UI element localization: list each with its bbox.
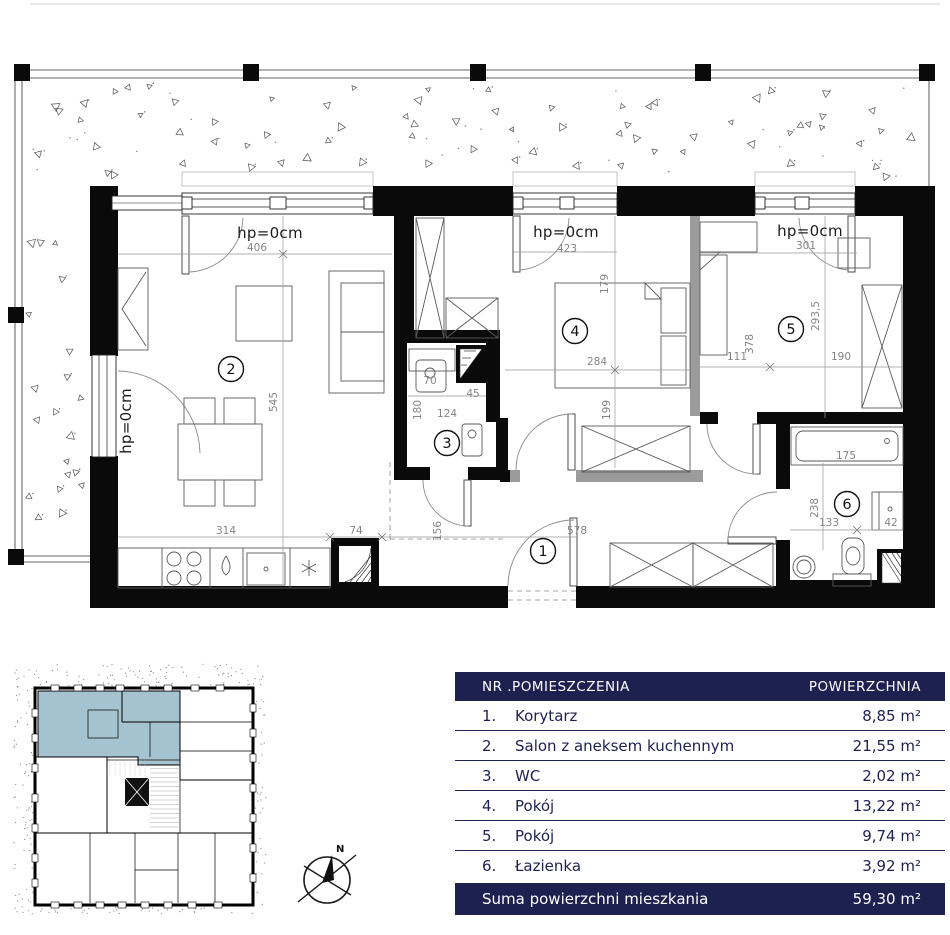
window-room5 [755,193,855,214]
wc-toilet [462,424,482,456]
plan-label-hp-0cm: hp=0cm [777,222,843,240]
room-name: Pokój [515,797,853,815]
legend-footer-total: 59,30 m² [853,890,921,908]
room-name: Korytarz [515,707,862,725]
kitchen-sink [247,553,285,585]
plan-label-301: 301 [796,240,816,252]
room-area: 21,55 m² [853,737,921,755]
legend-header-area: POWIERZCHNIA [809,679,921,695]
windows [92,193,855,457]
room-number: 1. [482,707,515,725]
legend-row-3: 3.WC2,02 m² [455,761,945,791]
plan-label-175: 175 [836,450,856,462]
plan-label-545: 545 [268,392,280,412]
wardrobe-salon [118,268,148,350]
sofa [329,271,384,393]
door-room5 [707,424,760,474]
legend-header-rooms: NR .POMIESZCZENIA [482,679,630,695]
plan-label-293-5: 293,5 [810,301,822,331]
plan-label-284: 284 [587,356,607,368]
plan-label-111: 111 [727,351,747,363]
legend-header: NR .POMIESZCZENIA POWIERZCHNIA [455,672,945,701]
page: hp=0cmhp=0cmhp=0cmhp=0cm4065454231792841… [0,0,950,935]
room-name: Salon z aneksem kuchennym [515,737,853,755]
plan-label-406: 406 [247,242,267,254]
wardrobe-room4-left [416,218,498,338]
plan-label-238: 238 [809,498,821,518]
plan-label-42: 42 [884,517,897,529]
room-marker-number-5: 5 [786,322,795,338]
room-area: 3,92 m² [862,857,921,875]
kitchen-counter [118,548,330,588]
plan-label-70: 70 [423,375,436,387]
fence-posts [8,64,935,565]
plan-label-179: 179 [599,274,611,294]
minimap [10,658,270,920]
room-number: 5. [482,827,515,845]
dimension-ticks [279,250,861,541]
room-number: 6. [482,857,515,875]
plan-label-124: 124 [437,408,457,420]
window-salon [182,193,373,214]
room-marker-number-3: 3 [442,436,451,452]
legend-row-5: 5.Pokój9,74 m² [455,821,945,851]
room-area: 2,02 m² [862,767,921,785]
plan-label-133: 133 [819,517,839,529]
dishwasher-icon [302,560,316,576]
north-label: N [336,844,344,855]
legend-row-6: 6.Łazienka3,92 m² [455,851,945,880]
legend-table: NR .POMIESZCZENIA POWIERZCHNIA 1.Korytar… [455,672,945,915]
floor-plan: hp=0cmhp=0cmhp=0cmhp=0cm4065454231792841… [0,0,950,660]
room-name: WC [515,767,862,785]
door-room4 [516,414,575,470]
room-number: 3. [482,767,515,785]
plan-label-hp-0cm: hp=0cm [237,224,303,242]
room-name: Pokój [515,827,862,845]
room-area: 8,85 m² [862,707,921,725]
legend-row-1: 1.Korytarz8,85 m² [455,701,945,731]
legend-row-2: 2.Salon z aneksem kuchennym21,55 m² [455,731,945,761]
door-bathroom [728,492,777,544]
plan-label-199: 199 [601,400,613,420]
wardrobe-room5 [862,285,902,408]
sink-drop-icon [222,556,230,575]
room-markers: 123456 [219,317,860,564]
plan-label-578: 578 [567,525,587,537]
plan-label-hp-0cm: hp=0cm [533,223,599,241]
wardrobe-room4-bottom [582,426,690,472]
room-name: Łazienka [515,857,862,875]
garden-fence [8,64,935,565]
legend-row-4: 4.Pokój13,22 m² [455,791,945,821]
door-salon-balcony [182,216,243,274]
balcony-door-left [92,355,116,457]
plan-label-314: 314 [216,525,236,537]
plan-label-hp-0cm: hp=0cm [117,388,135,454]
room-area: 13,22 m² [853,797,921,815]
plan-label-180: 180 [412,400,424,420]
bathroom-toilet [833,538,871,586]
plan-label-156: 156 [432,521,444,541]
terrace-pads [182,172,855,186]
room-number: 4. [482,797,515,815]
legend-footer: Suma powierzchni mieszkania 59,30 m² [455,883,945,915]
bathroom-sink [793,556,815,578]
room-area: 9,74 m² [862,827,921,845]
legend-rows: 1.Korytarz8,85 m²2.Salon z aneksem kuche… [455,701,945,880]
door-wc [423,480,471,526]
room-marker-number-1: 1 [538,544,547,560]
dining-table [178,398,262,506]
window-room4 [513,193,617,214]
plan-label-45: 45 [466,388,479,400]
room-number: 2. [482,737,515,755]
plan-label-190: 190 [831,351,851,363]
minimap-highlight-unit [38,691,180,765]
plan-label-423: 423 [557,243,577,255]
stove-icon [167,552,201,585]
compass: N [292,840,367,915]
coffee-table [236,286,292,341]
room-marker-number-2: 2 [226,362,235,378]
compass-needle [322,855,334,883]
wardrobe-corridor [610,543,773,587]
plan-label-74: 74 [349,525,363,537]
room-marker-number-6: 6 [842,497,851,513]
legend-footer-label: Suma powierzchni mieszkania [482,890,708,908]
room-marker-number-4: 4 [570,324,579,340]
